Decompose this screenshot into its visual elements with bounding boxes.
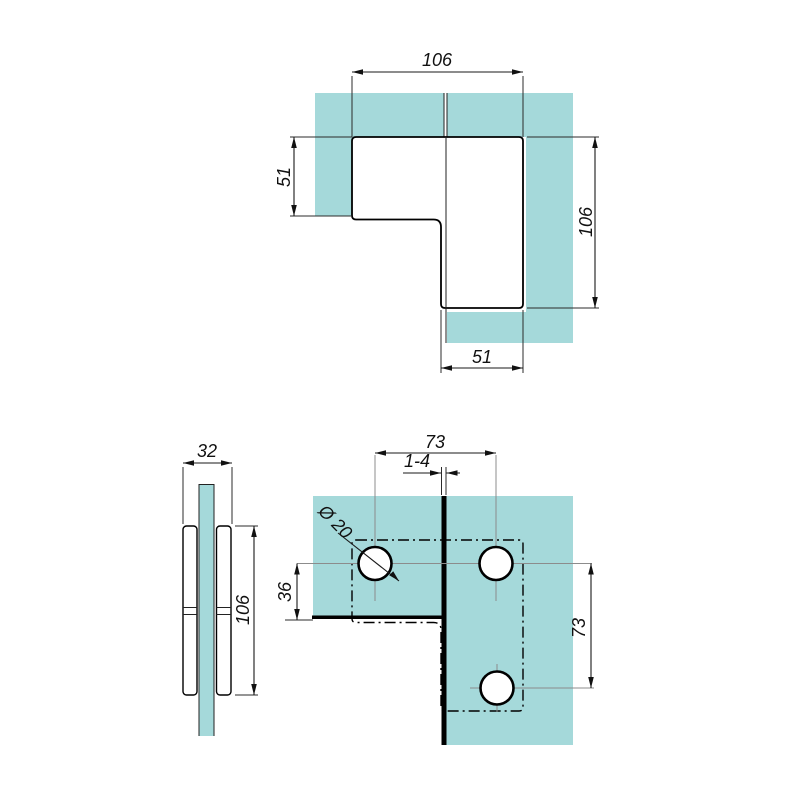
arrowhead (592, 297, 598, 308)
arrowhead (485, 450, 496, 456)
arrowhead (251, 526, 257, 537)
arrowhead (294, 609, 300, 620)
arrowhead (592, 137, 598, 148)
top-view: 106 51 106 51 (274, 50, 599, 373)
glass-bottom-thick-edge (312, 616, 447, 620)
glass-gap-thick-edge (442, 496, 447, 745)
hole-top-left (359, 547, 392, 580)
dim-label: 106 (576, 206, 596, 237)
arrowhead (221, 460, 232, 466)
dim-label: 73 (425, 432, 445, 452)
glass-edge-strip (199, 484, 214, 736)
dim-label: 51 (472, 347, 492, 367)
dim-label: 73 (569, 618, 589, 638)
arrowhead (588, 677, 594, 688)
arrowhead (430, 470, 441, 476)
side-view: 32 106 (183, 441, 258, 736)
dim-label: 51 (274, 167, 294, 187)
arrowhead (291, 137, 297, 148)
clamp-plate-left (183, 526, 197, 695)
arrowhead (588, 564, 594, 575)
dim-label: 36 (275, 581, 295, 602)
hole-bottom-right (481, 672, 514, 705)
dimension-hole-edge-offset: 36 (275, 564, 313, 621)
arrowhead (375, 450, 386, 456)
technical-drawing: 106 51 106 51 (0, 0, 800, 800)
dim-label: 32 (197, 441, 217, 461)
hole-top-right (480, 547, 513, 580)
arrowhead (512, 365, 523, 371)
dim-label: 106 (422, 50, 453, 70)
clamp-plate-outline (352, 137, 523, 308)
dimension-hole-spacing-horizontal: 73 (375, 432, 496, 456)
dim-label: 1-4 (404, 451, 430, 471)
arrowhead (447, 470, 458, 476)
arrowhead (294, 564, 300, 575)
arrowhead (183, 460, 194, 466)
glass-panel-right (447, 496, 574, 745)
arrowhead (251, 684, 257, 695)
dim-label: 106 (233, 594, 253, 625)
clamp-plate-right (217, 526, 232, 695)
arrowhead (291, 205, 297, 216)
arrowhead (441, 365, 452, 371)
arrowhead (352, 69, 363, 75)
front-view: 73 1-4 Ø 20 36 73 (275, 432, 594, 745)
dimension-plate-height: 106 (233, 526, 258, 695)
arrowhead (512, 69, 523, 75)
dimension-glass-gap: 1-4 (403, 451, 460, 495)
